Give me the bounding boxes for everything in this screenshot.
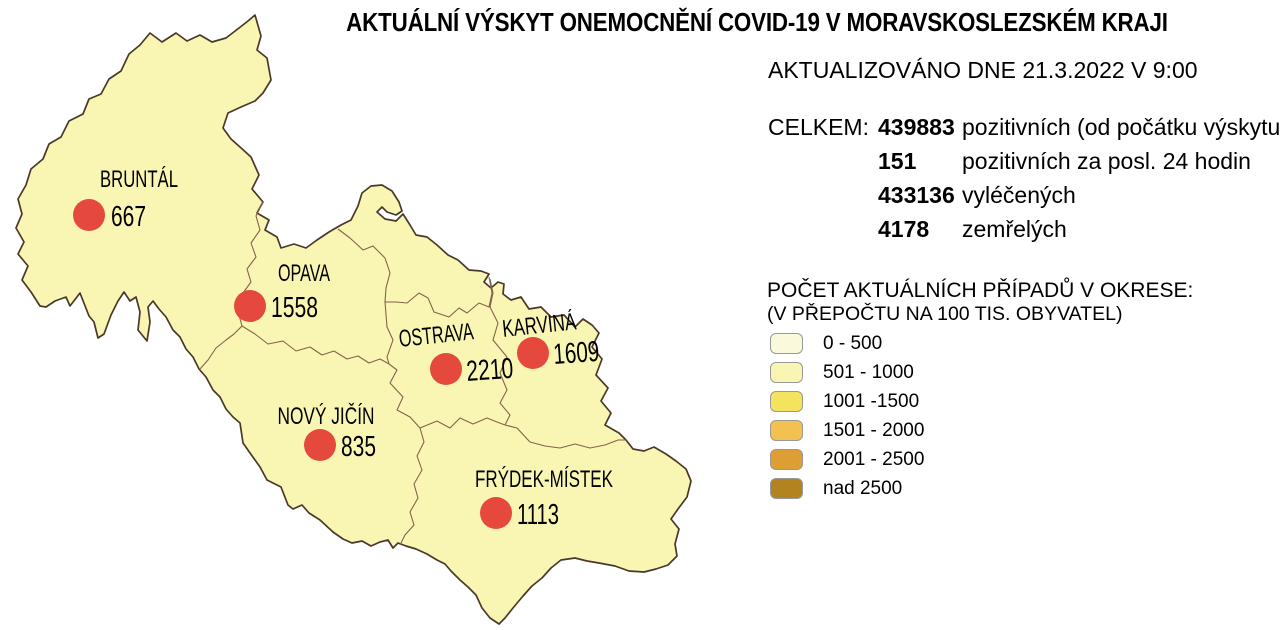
totals-block: CELKEM: 439883 pozitivních (od počátku v… [768,110,1280,246]
frydek-mistek-marker-icon [480,497,512,529]
legend-label-501-1000: 501 - 1000 [823,362,914,384]
district-label-bruntal: BRUNTÁL [100,166,178,193]
legend-title: POČET AKTUÁLNÍCH PŘÍPADŮ V OKRESE: [767,279,1193,303]
legend-swatch-1501-2000 [770,420,803,441]
totals-text-deaths: zemřelých [962,212,1067,246]
totals-text-positive-total: pozitivních (od počátku výskytu) [962,110,1280,144]
bruntal-marker-icon [73,199,105,231]
legend-label-nad-2500: nad 2500 [823,478,902,500]
legend-label-0-500: 0 - 500 [823,333,882,355]
legend-item: 0 - 500 [770,329,924,358]
legend-swatch-501-1000 [770,362,803,383]
ostrava-marker-icon [430,353,462,385]
totals-row-deaths: 4178 zemřelých [768,212,1280,246]
legend-item: nad 2500 [770,474,924,503]
legend-label-1001-1500: 1001 -1500 [823,391,919,413]
legend-label-1501-2000: 1501 - 2000 [823,420,924,442]
district-value-ostrava: 2210 [465,353,514,388]
region-map: BRUNTÁL 667 OPAVA 1558 OSTRAVA 2210 KARV… [0,0,770,630]
district-value-frydek-mistek: 1113 [517,499,559,531]
updated-date: AKTUALIZOVÁNO DNE 21.3.2022 V 9:00 [768,57,1198,84]
legend-subtitle: (V PŘEPOČTU NA 100 TIS. OBYVATEL) [767,303,1122,326]
legend-item: 501 - 1000 [770,358,924,387]
legend: 0 - 500 501 - 1000 1001 -1500 1501 - 200… [770,329,924,503]
legend-swatch-2001-2500 [770,449,803,470]
totals-value-positive-24h: 151 [878,144,962,178]
district-value-novy-jicin: 835 [341,431,376,463]
legend-item: 1001 -1500 [770,387,924,416]
totals-value-deaths: 4178 [878,212,962,246]
district-label-opava: OPAVA [278,260,330,287]
region-outline [16,15,691,624]
totals-value-recovered: 433136 [878,178,962,212]
opava-marker-icon [234,290,266,322]
totals-row-recovered: 433136 vyléčených [768,178,1280,212]
legend-item: 2001 - 2500 [770,445,924,474]
totals-value-positive-total: 439883 [878,110,962,144]
totals-label: CELKEM: [768,110,878,144]
karvina-marker-icon [517,337,549,369]
district-label-frydek-mistek: FRÝDEK-MÍSTEK [475,466,613,493]
totals-text-positive-24h: pozitivních za posl. 24 hodin [962,144,1251,178]
legend-swatch-0-500 [770,333,803,354]
totals-row-positive-24h: 151 pozitivních za posl. 24 hodin [768,144,1280,178]
district-value-opava: 1558 [271,292,318,324]
legend-swatch-nad-2500 [770,478,803,499]
legend-swatch-1001-1500 [770,391,803,412]
covid-map-infographic: { "title": "AKTUÁLNÍ VÝSKYT ONEMOCNĚNÍ C… [0,0,1280,630]
legend-label-2001-2500: 2001 - 2500 [823,449,924,471]
district-value-karvina: 1609 [552,336,600,371]
novy-jicin-marker-icon [304,429,336,461]
district-label-novy-jicin: NOVÝ JIČÍN [278,402,375,430]
district-value-bruntal: 667 [111,201,146,233]
totals-row-positive-total: CELKEM: 439883 pozitivních (od počátku v… [768,110,1280,144]
totals-text-recovered: vyléčených [962,178,1076,212]
legend-item: 1501 - 2000 [770,416,924,445]
